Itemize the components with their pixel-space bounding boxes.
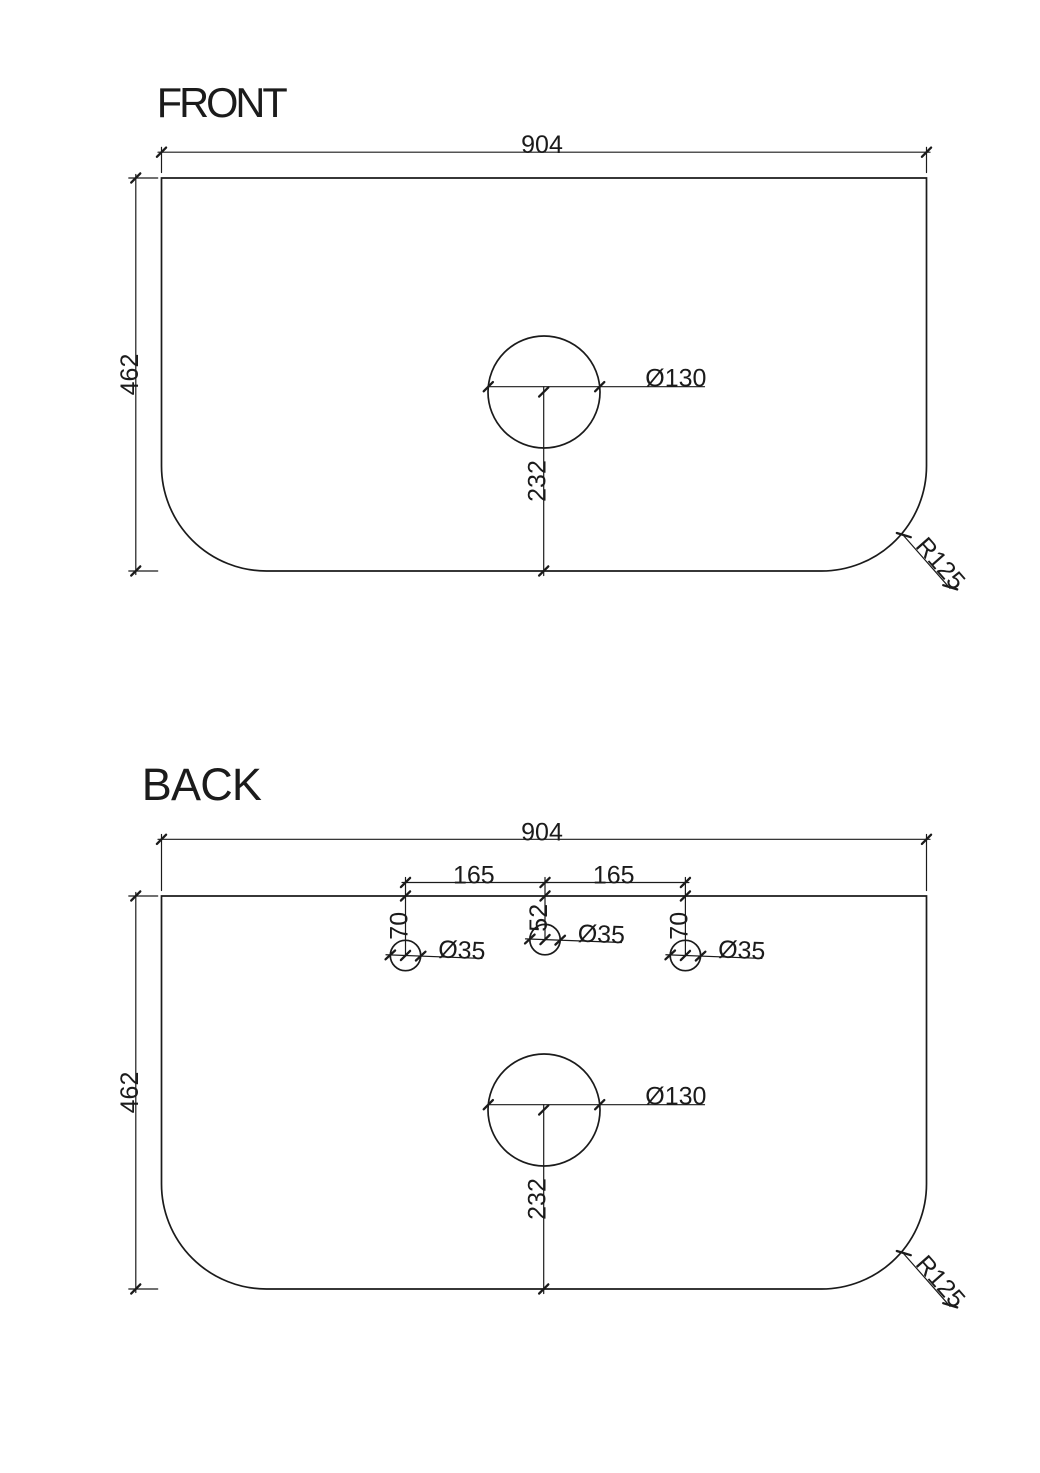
- svg-text:904: 904: [521, 131, 563, 159]
- svg-text:BACK: BACK: [142, 759, 262, 810]
- svg-text:R125: R125: [910, 532, 971, 595]
- svg-text:52: 52: [525, 904, 553, 932]
- svg-text:165: 165: [593, 862, 635, 890]
- svg-text:R125: R125: [910, 1250, 971, 1313]
- svg-text:232: 232: [524, 460, 552, 502]
- svg-text:Ø130: Ø130: [645, 1082, 706, 1110]
- svg-text:70: 70: [386, 912, 414, 940]
- svg-text:462: 462: [116, 1072, 144, 1114]
- svg-text:FRONT: FRONT: [157, 79, 288, 126]
- svg-text:70: 70: [665, 912, 693, 940]
- svg-text:462: 462: [116, 354, 144, 396]
- svg-text:Ø130: Ø130: [645, 364, 706, 392]
- svg-text:165: 165: [453, 862, 495, 890]
- svg-text:Ø35: Ø35: [718, 936, 766, 966]
- svg-text:232: 232: [524, 1178, 552, 1220]
- svg-text:Ø35: Ø35: [438, 936, 486, 966]
- svg-text:Ø35: Ø35: [577, 920, 625, 950]
- svg-text:904: 904: [521, 818, 563, 846]
